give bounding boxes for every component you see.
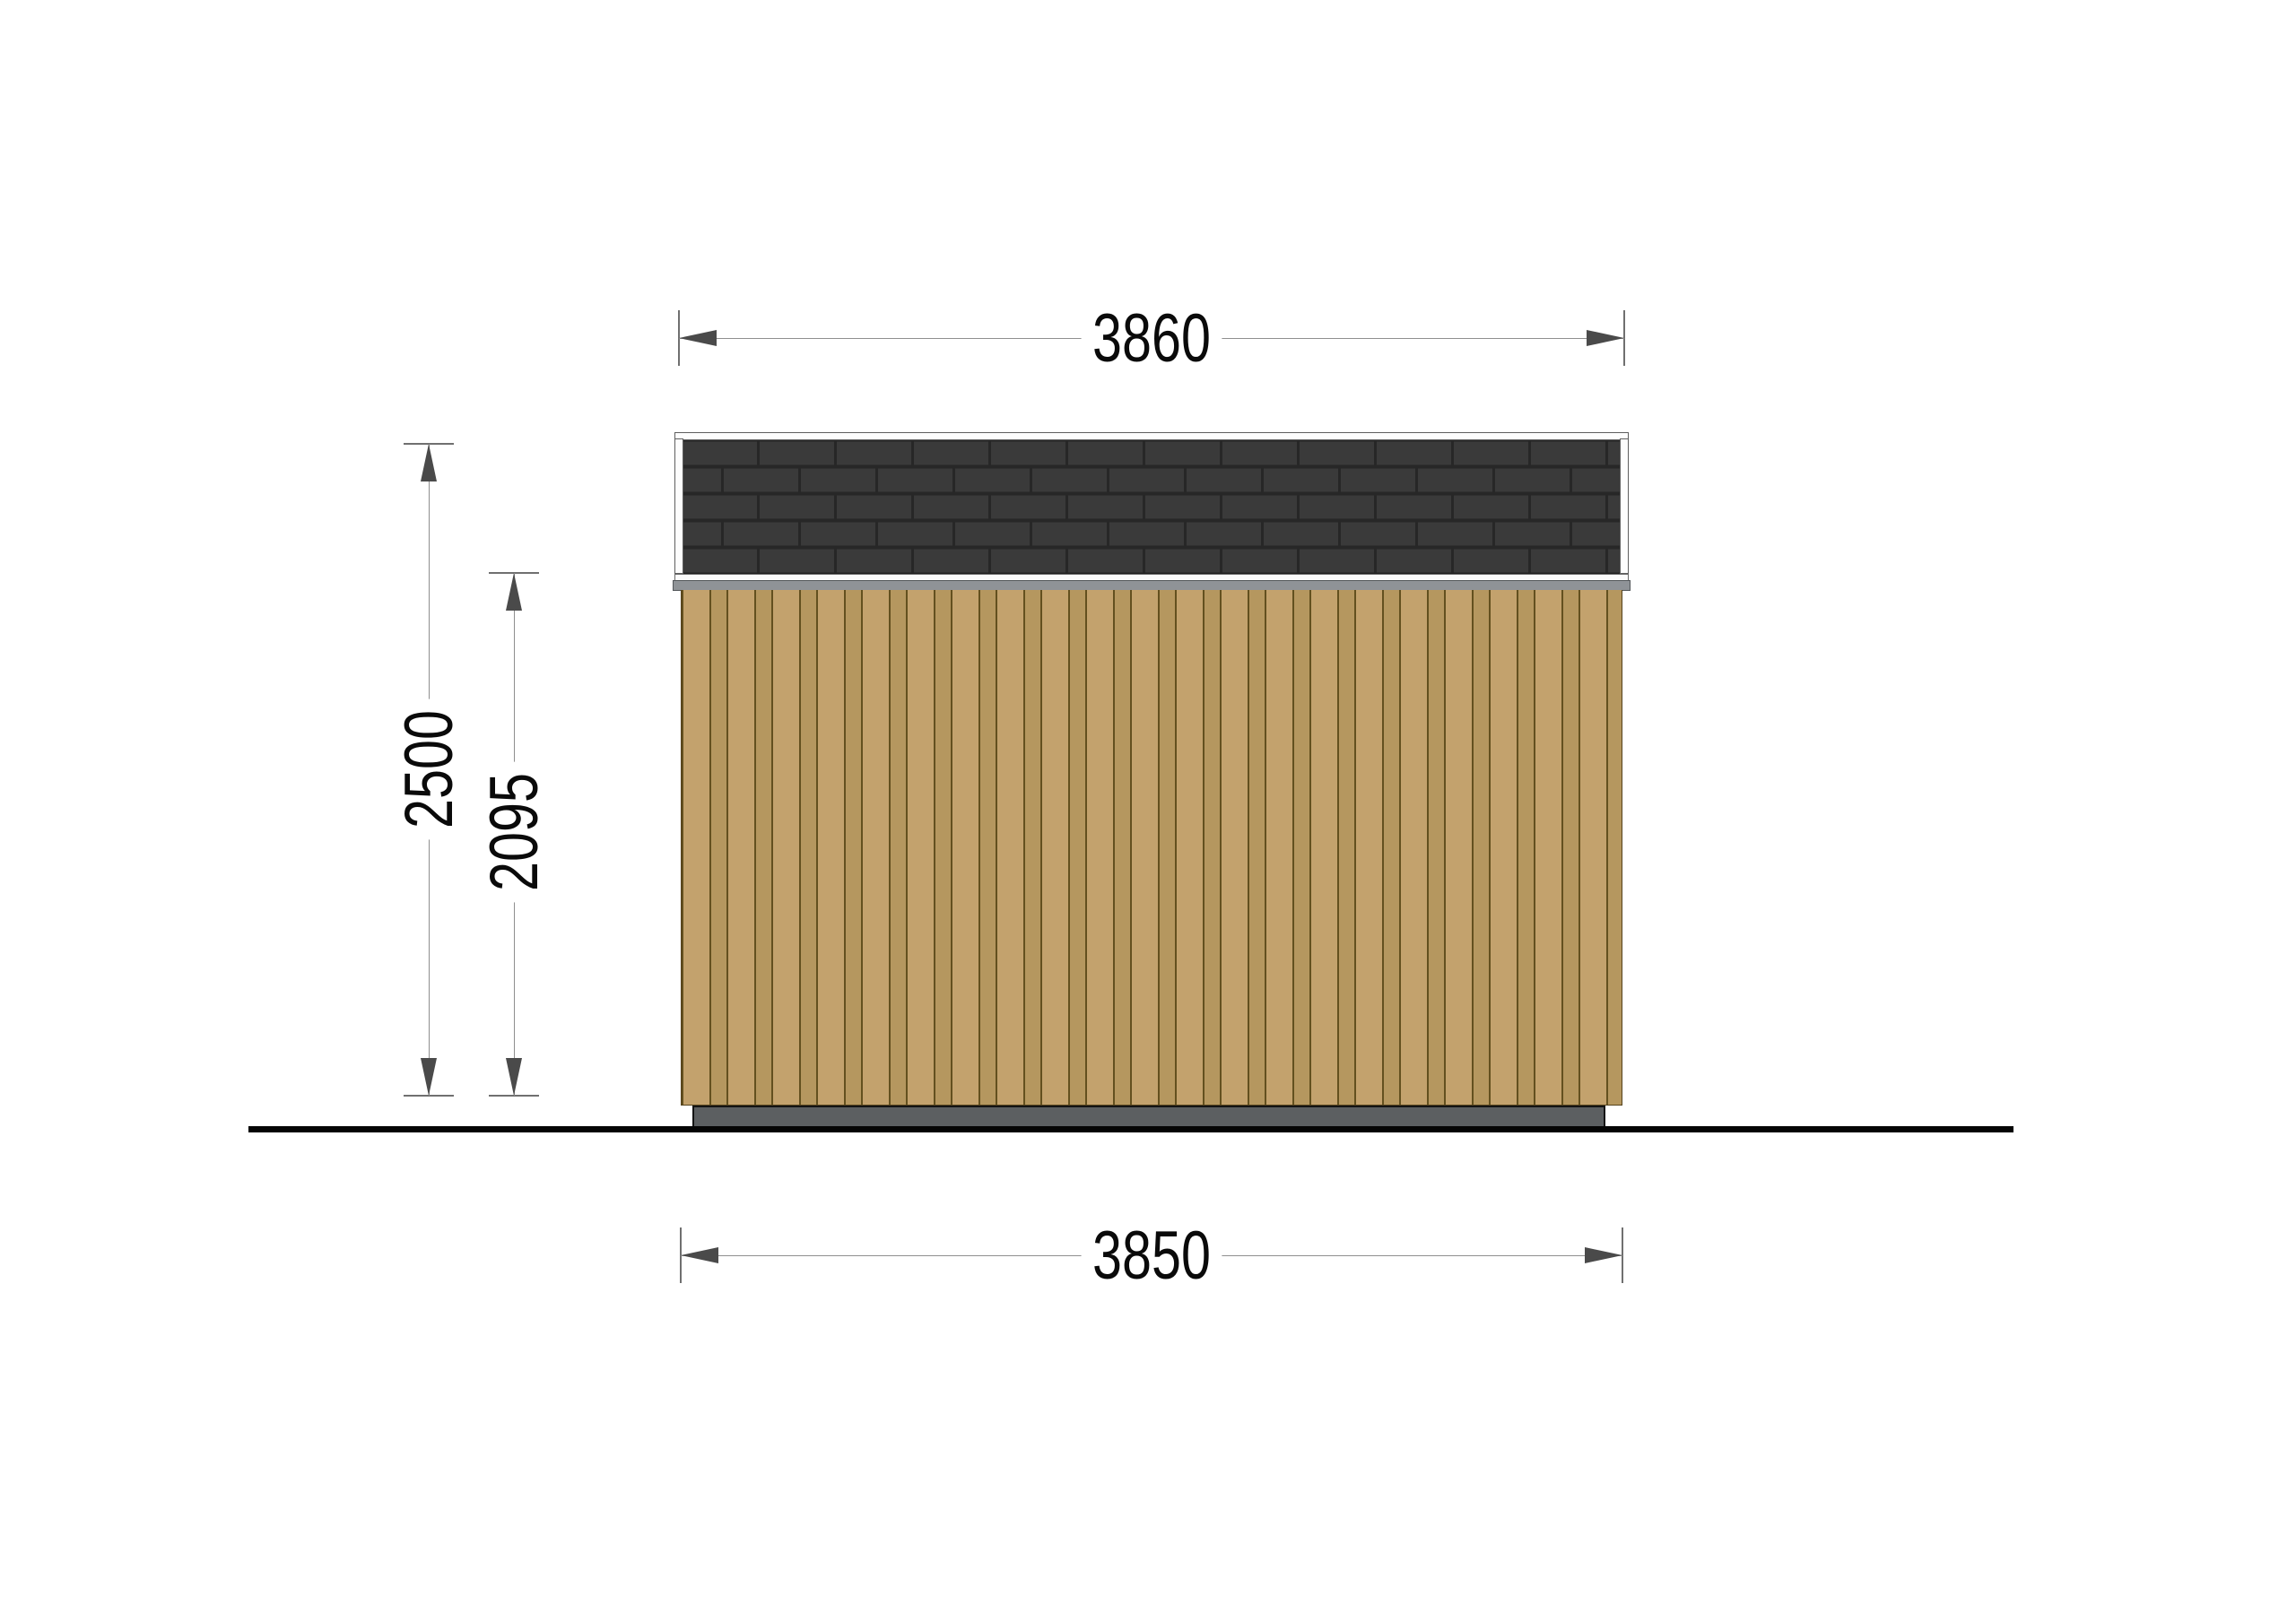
arrow-up-icon bbox=[506, 573, 522, 611]
wall-siding bbox=[681, 590, 1622, 1106]
roof-ridge-trim bbox=[674, 432, 1629, 440]
dimension-label-roof-width: 3860 bbox=[1082, 303, 1222, 375]
arrow-left-icon bbox=[679, 330, 717, 346]
arrow-down-icon bbox=[506, 1058, 522, 1096]
arrow-right-icon bbox=[1587, 330, 1624, 346]
shingle-pattern bbox=[683, 439, 1621, 573]
roof-edge-trim-right bbox=[1620, 438, 1629, 574]
elevation-drawing: 3860 3850 2500 2095 bbox=[0, 0, 2296, 1622]
arrow-left-icon bbox=[681, 1247, 718, 1263]
arrow-right-icon bbox=[1585, 1247, 1622, 1263]
dimension-label-base-width: 3850 bbox=[1082, 1220, 1222, 1292]
arrow-down-icon bbox=[421, 1058, 437, 1096]
arrow-up-icon bbox=[421, 444, 437, 481]
roof-edge-trim-left bbox=[674, 438, 683, 574]
roof-shingles bbox=[683, 439, 1621, 574]
dimension-label-wall-height: 2095 bbox=[479, 762, 551, 903]
dimension-label-overall-height: 2500 bbox=[394, 699, 465, 840]
roof-band bbox=[674, 432, 1629, 574]
ground-line bbox=[248, 1126, 2013, 1132]
